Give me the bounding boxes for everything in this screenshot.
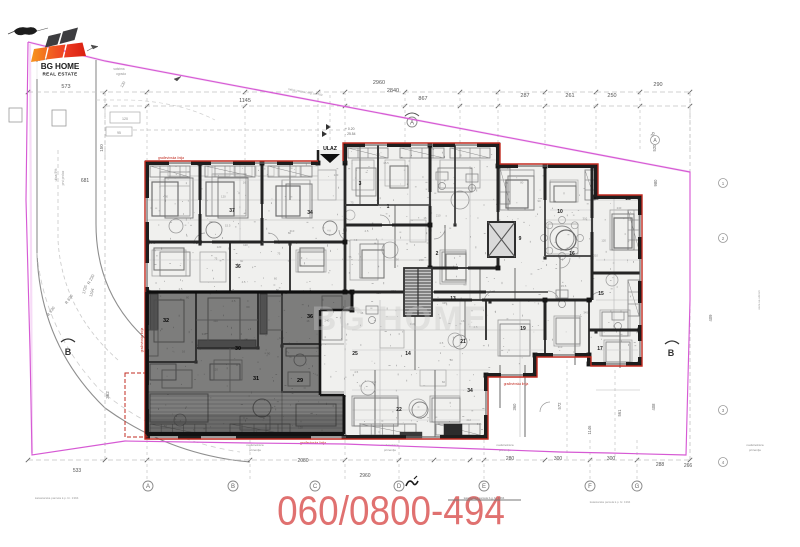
svg-text:290: 290 bbox=[653, 82, 662, 88]
svg-text:19: 19 bbox=[520, 326, 526, 332]
svg-text:4.5: 4.5 bbox=[242, 280, 246, 284]
svg-text:533: 533 bbox=[73, 468, 82, 474]
svg-text:287: 287 bbox=[520, 93, 529, 99]
svg-text:120: 120 bbox=[601, 239, 606, 243]
svg-text:310: 310 bbox=[372, 380, 377, 384]
svg-text:75: 75 bbox=[348, 255, 352, 259]
svg-text:36: 36 bbox=[307, 314, 313, 320]
svg-text:prizemlje: prizemlje bbox=[384, 448, 396, 452]
svg-text:ULAZ: ULAZ bbox=[323, 146, 338, 152]
svg-text:15.5: 15.5 bbox=[561, 284, 567, 288]
svg-text:veza sa ulicom: veza sa ulicom bbox=[757, 290, 761, 310]
svg-text:980: 980 bbox=[653, 179, 658, 187]
svg-text:573: 573 bbox=[61, 84, 70, 90]
svg-text:4.5: 4.5 bbox=[439, 341, 443, 345]
svg-text:prizemlje: prizemlje bbox=[249, 448, 261, 452]
svg-text:80: 80 bbox=[288, 231, 292, 235]
svg-text:31: 31 bbox=[253, 376, 259, 382]
svg-text:80: 80 bbox=[520, 181, 524, 185]
svg-text:75: 75 bbox=[350, 200, 354, 204]
svg-text:2960: 2960 bbox=[359, 473, 370, 479]
svg-text:60: 60 bbox=[442, 380, 446, 384]
svg-text:nadstrešnica: nadstrešnica bbox=[746, 443, 763, 447]
svg-text:F: F bbox=[588, 484, 592, 490]
svg-text:408: 408 bbox=[651, 403, 656, 411]
svg-text:345: 345 bbox=[583, 311, 588, 315]
svg-text:prvi prolaz: prvi prolaz bbox=[61, 170, 65, 185]
svg-text:300: 300 bbox=[607, 456, 616, 462]
svg-text:katastarska parcela k.p. br. 1: katastarska parcela k.p. br. 1394 bbox=[35, 496, 79, 500]
svg-text:1: 1 bbox=[387, 204, 390, 210]
svg-text:16: 16 bbox=[569, 251, 575, 257]
svg-text:4.5: 4.5 bbox=[354, 370, 358, 374]
svg-text:120: 120 bbox=[122, 117, 128, 121]
svg-text:1194: 1194 bbox=[88, 287, 95, 297]
svg-text:2960: 2960 bbox=[373, 80, 385, 86]
svg-text:250: 250 bbox=[607, 93, 616, 99]
svg-text:3: 3 bbox=[722, 408, 725, 413]
svg-text:280: 280 bbox=[506, 456, 515, 462]
svg-text:572: 572 bbox=[557, 402, 562, 410]
svg-text:15.5: 15.5 bbox=[383, 161, 389, 165]
svg-text:R 230: R 230 bbox=[86, 273, 96, 285]
svg-text:satstma: satstma bbox=[113, 67, 124, 71]
svg-text:ulica 5%: ulica 5% bbox=[54, 169, 58, 182]
svg-text:A: A bbox=[146, 484, 150, 490]
svg-text:561: 561 bbox=[617, 409, 622, 417]
svg-text:2080: 2080 bbox=[297, 458, 308, 464]
svg-text:BG HOME: BG HOME bbox=[312, 300, 488, 338]
svg-text:681: 681 bbox=[81, 178, 90, 184]
svg-text:1146: 1146 bbox=[587, 425, 592, 435]
svg-text:R 830: R 830 bbox=[46, 305, 57, 317]
svg-text:29: 29 bbox=[297, 378, 303, 384]
svg-text:60: 60 bbox=[274, 277, 278, 281]
svg-text:15.5: 15.5 bbox=[225, 224, 231, 228]
svg-text:2: 2 bbox=[722, 236, 725, 241]
svg-text:katastarska parcela b.g. br. 1: katastarska parcela b.g. br. 1394 bbox=[464, 496, 505, 500]
svg-text:4: 4 bbox=[722, 460, 725, 465]
svg-text:2840: 2840 bbox=[387, 88, 399, 94]
svg-text:BG HOME: BG HOME bbox=[41, 62, 80, 71]
svg-text:36: 36 bbox=[235, 264, 241, 270]
svg-text:300: 300 bbox=[554, 456, 563, 462]
svg-text:266: 266 bbox=[684, 463, 693, 469]
svg-text:867: 867 bbox=[418, 96, 427, 102]
svg-text:288: 288 bbox=[656, 462, 665, 468]
svg-text:13: 13 bbox=[450, 296, 456, 302]
svg-text:katastarska parcela k.p. br. 1: katastarska parcela k.p. br. 1394 bbox=[590, 500, 631, 504]
svg-text:22: 22 bbox=[396, 407, 402, 413]
svg-text:32: 32 bbox=[163, 318, 169, 324]
svg-text:34: 34 bbox=[467, 388, 473, 394]
svg-text:REAL ESTATE: REAL ESTATE bbox=[43, 72, 78, 77]
svg-text:120: 120 bbox=[221, 194, 226, 198]
svg-text:G: G bbox=[635, 484, 640, 490]
svg-text:+ 0.20: + 0.20 bbox=[345, 127, 355, 131]
svg-text:1: 1 bbox=[722, 181, 725, 186]
svg-text:R 630: R 630 bbox=[64, 293, 75, 305]
svg-text:37: 37 bbox=[229, 208, 235, 214]
svg-text:16: 16 bbox=[423, 216, 427, 220]
svg-text:75: 75 bbox=[277, 251, 281, 255]
svg-text:90: 90 bbox=[537, 199, 541, 203]
svg-text:21: 21 bbox=[460, 339, 466, 345]
svg-text:16: 16 bbox=[243, 180, 247, 184]
svg-text:2: 2 bbox=[436, 251, 439, 257]
svg-text:30: 30 bbox=[235, 346, 241, 352]
svg-text:4.5: 4.5 bbox=[178, 287, 182, 291]
svg-text:25: 25 bbox=[352, 351, 358, 357]
svg-text:120: 120 bbox=[217, 245, 222, 249]
svg-text:nadstrešnica: nadstrešnica bbox=[496, 443, 513, 447]
svg-text:građevinska linija: građevinska linija bbox=[140, 328, 144, 353]
svg-text:60: 60 bbox=[450, 358, 454, 362]
svg-text:1726: 1726 bbox=[81, 284, 88, 295]
svg-text:90: 90 bbox=[396, 258, 400, 262]
svg-text:360: 360 bbox=[512, 403, 517, 411]
svg-text:18: 18 bbox=[625, 196, 631, 202]
svg-text:150: 150 bbox=[99, 144, 104, 152]
svg-text:409: 409 bbox=[708, 314, 713, 322]
svg-text:9: 9 bbox=[519, 236, 522, 242]
svg-text:520: 520 bbox=[652, 144, 657, 152]
svg-text:3: 3 bbox=[359, 181, 362, 187]
svg-text:prizemlje: prizemlje bbox=[749, 448, 761, 452]
svg-text:34: 34 bbox=[307, 210, 313, 216]
svg-text:B: B bbox=[668, 348, 675, 358]
svg-text:A: A bbox=[410, 120, 414, 126]
svg-text:ograda: ograda bbox=[116, 72, 126, 76]
svg-text:120: 120 bbox=[243, 243, 248, 247]
svg-text:240: 240 bbox=[419, 258, 424, 262]
svg-text:građevinska linija: građevinska linija bbox=[158, 156, 184, 160]
svg-text:362: 362 bbox=[105, 391, 110, 399]
svg-text:17: 17 bbox=[597, 346, 603, 352]
svg-text:10: 10 bbox=[557, 209, 563, 215]
svg-text:310: 310 bbox=[583, 217, 588, 221]
svg-text:261: 261 bbox=[565, 93, 574, 99]
svg-text:120: 120 bbox=[334, 173, 339, 177]
svg-text:14: 14 bbox=[405, 351, 411, 357]
svg-text:240: 240 bbox=[617, 206, 622, 210]
svg-text:građevinska linija: građevinska linija bbox=[504, 382, 529, 386]
svg-text:80: 80 bbox=[463, 282, 467, 286]
svg-text:B: B bbox=[231, 484, 235, 490]
svg-text:4.5: 4.5 bbox=[365, 229, 369, 233]
svg-text:120: 120 bbox=[120, 81, 127, 88]
svg-text:B: B bbox=[65, 347, 72, 357]
svg-text:A: A bbox=[653, 138, 657, 144]
svg-text:310: 310 bbox=[593, 253, 598, 257]
svg-text:310: 310 bbox=[558, 345, 563, 349]
svg-text:95: 95 bbox=[117, 131, 121, 135]
svg-text:15: 15 bbox=[598, 291, 604, 297]
svg-text:210: 210 bbox=[436, 213, 441, 217]
svg-text:- 25.54: - 25.54 bbox=[345, 132, 356, 136]
